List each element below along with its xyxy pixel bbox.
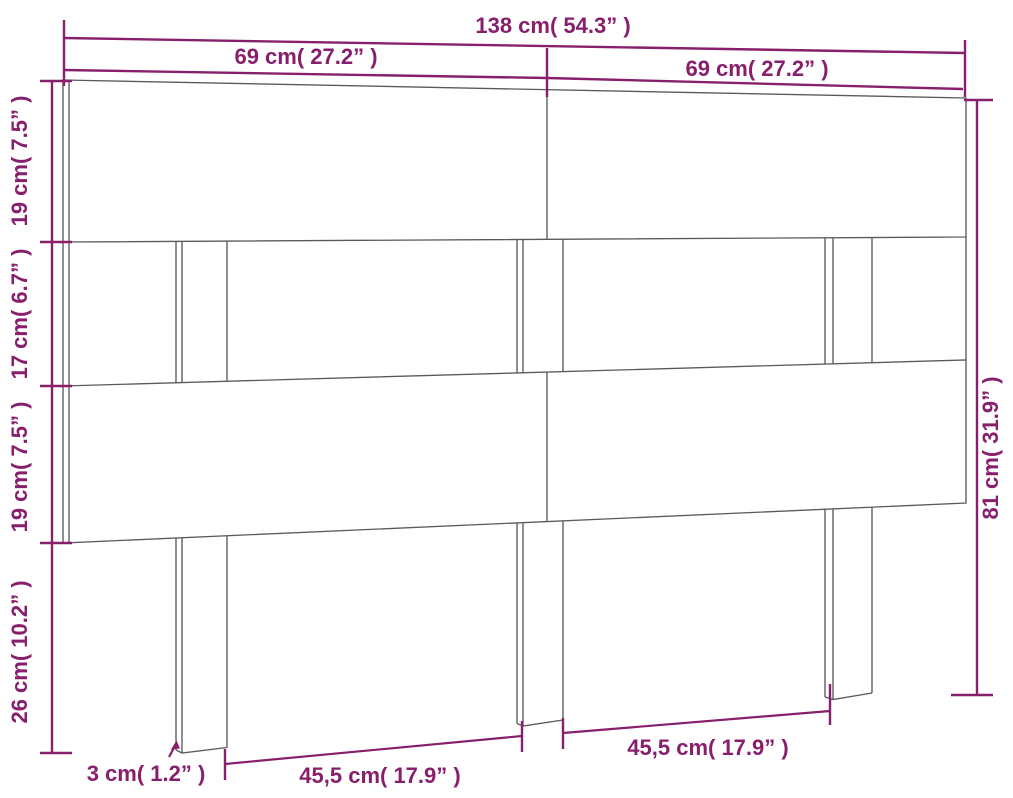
- label-leg-spacing-right: 45,5 cm( 17.9” ): [627, 735, 788, 760]
- dim-line-half-width-left: [64, 70, 547, 78]
- label-leg-spacing-left: 45,5 cm( 17.9” ): [299, 763, 460, 788]
- label-middle-board-height: 19 cm( 7.5” ): [7, 402, 32, 533]
- label-gap-height: 17 cm( 6.7” ): [7, 249, 32, 380]
- middle-board: [63, 360, 966, 543]
- leg-1-foot: [176, 748, 227, 754]
- label-leg-height: 26 cm( 10.2” ): [7, 580, 32, 723]
- dim-line-leg-spacing-left: [225, 736, 522, 764]
- label-top-board-height: 19 cm( 7.5” ): [7, 96, 32, 227]
- headboard-dimension-drawing: 138 cm( 54.3” ) 69 cm( 27.2” ) 69 cm( 27…: [0, 0, 1013, 798]
- label-half-width-left: 69 cm( 27.2” ): [234, 44, 377, 69]
- headboard-drawing: [63, 80, 966, 753]
- dim-line-total-width: [64, 38, 965, 53]
- leg-2-foot: [517, 720, 563, 726]
- label-total-height: 81 cm( 31.9” ): [978, 376, 1003, 519]
- label-board-thickness: 3 cm( 1.2” ): [87, 761, 206, 786]
- label-total-width: 138 cm( 54.3” ): [475, 13, 630, 38]
- dim-line-leg-spacing-right: [563, 711, 830, 733]
- label-half-width-right: 69 cm( 27.2” ): [685, 56, 828, 81]
- top-board: [63, 80, 966, 242]
- diagram-canvas: 138 cm( 54.3” ) 69 cm( 27.2” ) 69 cm( 27…: [0, 0, 1013, 798]
- leg-3-foot: [825, 693, 872, 700]
